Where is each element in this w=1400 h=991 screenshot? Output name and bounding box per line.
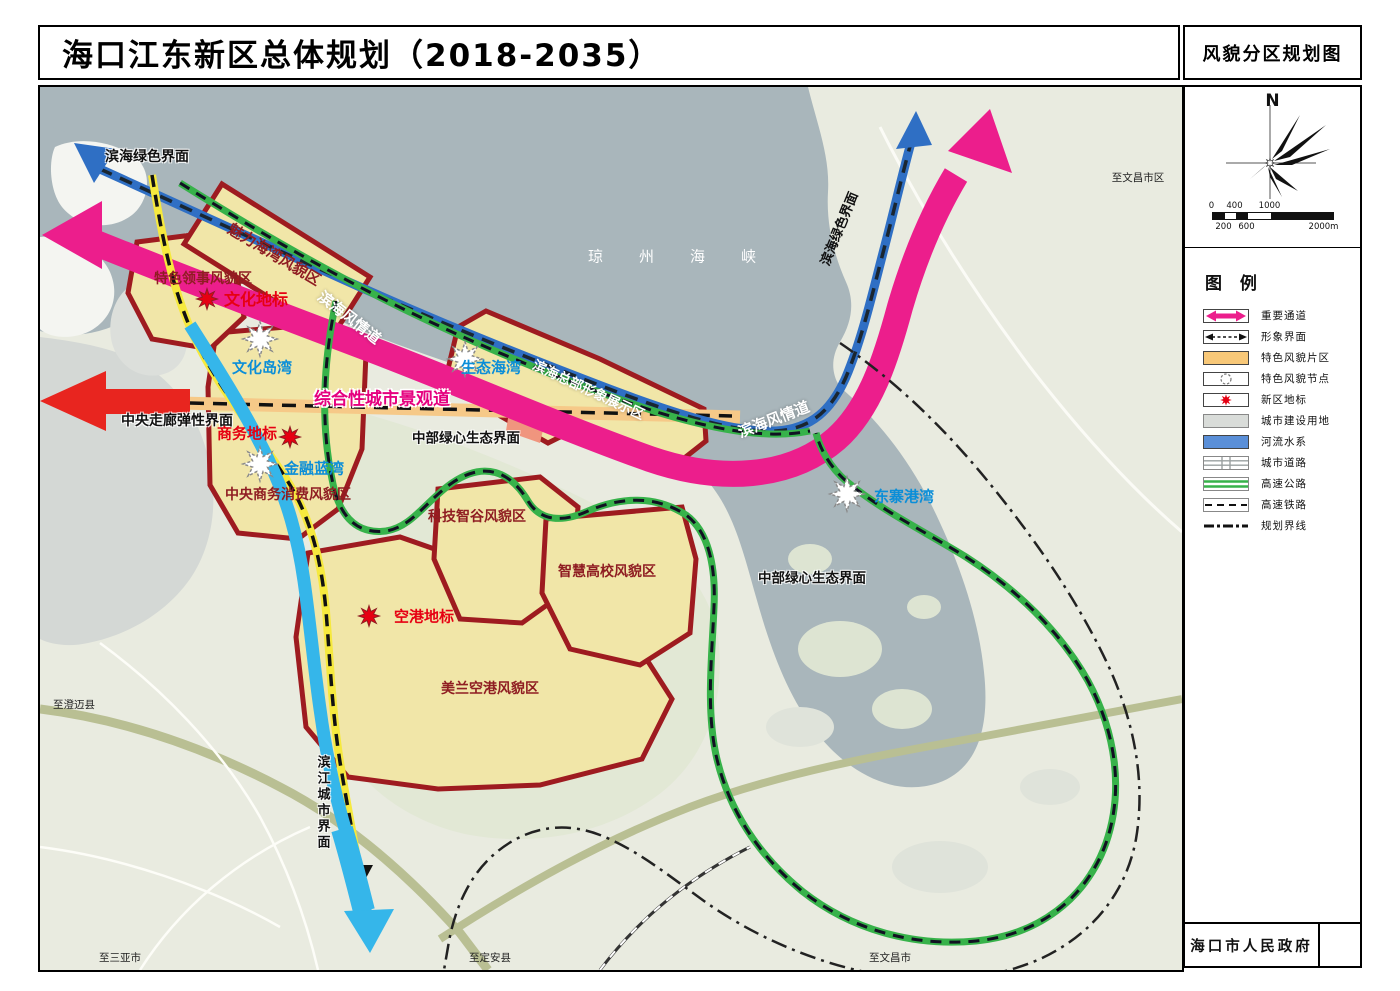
railway-icon <box>1203 498 1249 512</box>
dashdot-line-icon <box>1203 519 1249 533</box>
legend-title: 图 例 <box>1205 269 1360 294</box>
planning-sheet: 海口江东新区总体规划（2018-2035） 风貌分区规划图 <box>0 0 1400 991</box>
compass-section: N 0 400 1000 <box>1185 87 1360 248</box>
corridor-comprehensive-label: 综合性城市景观道 <box>314 392 450 409</box>
central-green-heart-label-east: 中部绿心生态界面 <box>758 572 866 586</box>
zone-meilan-airport-label: 美兰空港风貌区 <box>441 682 539 696</box>
legend-item-urban-construction-land: 城市建设用地 <box>1203 413 1360 428</box>
scale-tick: 200 <box>1215 222 1231 232</box>
direction-to-wenchang-urban: 至文昌市区 <box>1112 173 1165 184</box>
page-title: 海口江东新区总体规划（2018-2035） <box>38 25 1180 80</box>
legend-item-important-corridor: 重要通道 <box>1203 308 1360 323</box>
coastal-green-interface-label-west: 滨海绿色界面 <box>105 150 189 164</box>
node-finance-blue-bay-label: 金融蓝湾 <box>284 462 344 477</box>
legend-item-planning-boundary: 规划界线 <box>1203 518 1360 533</box>
landmark-business-label: 商务地标 <box>217 427 277 442</box>
zone-consular-label: 特色领事风貌区 <box>154 272 252 286</box>
legend-item-city-road: 城市道路 <box>1203 455 1360 470</box>
orange-zone-swatch <box>1203 351 1249 365</box>
node-star-culture-island-bay <box>243 322 277 356</box>
red-star-icon <box>1203 393 1249 407</box>
legend-label: 城市建设用地 <box>1261 413 1330 428</box>
legend-label: 高速铁路 <box>1261 497 1307 512</box>
landmark-star-culture <box>196 288 217 309</box>
direction-to-sanya: 至三亚市 <box>99 953 141 964</box>
legend: 图 例 重要通道 形象界面 特色风貌片区 特色风貌节点 新区地标 <box>1185 247 1360 539</box>
publisher-name: 海口市人民政府 <box>1185 924 1318 966</box>
road-icon <box>1203 456 1249 470</box>
compass-rose-icon <box>1208 101 1338 201</box>
node-eco-bay-label: 生态海湾 <box>461 361 521 376</box>
direction-to-chengmai: 至澄迈县 <box>53 700 95 711</box>
highway-icon <box>1203 477 1249 491</box>
legend-item-river-system: 河流水系 <box>1203 434 1360 449</box>
legend-label: 河流水系 <box>1261 434 1307 449</box>
scale-tick: 400 <box>1226 201 1242 211</box>
legend-label: 特色风貌片区 <box>1261 350 1330 365</box>
node-dongzhai-bay-label: 东寨港湾 <box>874 490 934 505</box>
legend-label: 新区地标 <box>1261 392 1307 407</box>
zone-cbd-label: 中央商务消费风貌区 <box>225 488 351 502</box>
dashed-double-arrow-icon <box>1203 330 1249 344</box>
legend-item-new-district-landmark: 新区地标 <box>1203 392 1360 407</box>
gray-swatch <box>1203 414 1249 428</box>
node-culture-island-bay-label: 文化岛湾 <box>232 361 292 376</box>
sheet-title: 风貌分区规划图 <box>1183 25 1362 80</box>
scale-bar-segments <box>1212 212 1334 220</box>
landmark-culture-label: 文化地标 <box>224 292 288 308</box>
stamp-box <box>1318 924 1360 966</box>
scale-tick: 600 <box>1238 222 1254 232</box>
zone-tech-valley-label: 科技智谷风貌区 <box>428 510 526 524</box>
legend-item-characteristic-node: 特色风貌节点 <box>1203 371 1360 386</box>
landmark-star-business <box>279 426 300 447</box>
direction-to-dingan: 至定安县 <box>469 953 511 964</box>
legend-label: 重要通道 <box>1261 308 1307 323</box>
node-star-finance-blue-bay <box>243 447 277 481</box>
scale-tick: 1000 <box>1259 201 1281 211</box>
central-green-heart-label-west: 中部绿心生态界面 <box>412 432 520 446</box>
sheet-title-text: 风貌分区规划图 <box>1203 40 1343 66</box>
zone-smart-campus-label: 智慧高校风貌区 <box>558 565 656 579</box>
map-marginalia-panel: N 0 400 1000 <box>1183 85 1362 968</box>
urban-land-west <box>40 337 213 645</box>
riverside-city-interface-label: 滨江城市界面 <box>316 755 329 851</box>
legend-item-characteristic-zone: 特色风貌片区 <box>1203 350 1360 365</box>
page-title-text: 海口江东新区总体规划（2018-2035） <box>62 30 661 75</box>
legend-item-image-interface: 形象界面 <box>1203 329 1360 344</box>
legend-label: 高速公路 <box>1261 476 1307 491</box>
legend-item-expressway: 高速公路 <box>1203 476 1360 491</box>
legend-label: 特色风貌节点 <box>1261 371 1330 386</box>
legend-label: 规划界线 <box>1261 518 1307 533</box>
landmark-airport-label: 空港地标 <box>394 610 454 625</box>
node-circle-icon <box>1203 372 1249 386</box>
direction-to-wenchang: 至文昌市 <box>869 953 911 964</box>
legend-label: 城市道路 <box>1261 455 1307 470</box>
legend-label: 形象界面 <box>1261 329 1307 344</box>
map-graphic <box>40 87 1182 970</box>
landmark-star-airport <box>358 605 379 626</box>
map-canvas: 琼州海峡 滨海绿色界面 滨海绿色界面 魅力海湾风貌区 特色领事风貌区 文化地标 … <box>38 85 1184 972</box>
pink-double-arrow-icon <box>1203 309 1249 323</box>
scale-bar: 0 400 1000 200 600 2000m <box>1212 201 1334 233</box>
scale-tick: 0 <box>1209 201 1214 211</box>
zone-smart-campus <box>542 507 696 665</box>
scale-tick: 2000m <box>1309 222 1339 232</box>
sea-name-label: 琼州海峡 <box>588 250 792 265</box>
node-star-dongzhai-bay <box>830 477 864 511</box>
blue-swatch <box>1203 435 1249 449</box>
publisher-strip: 海口市人民政府 <box>1185 922 1360 966</box>
legend-item-high-speed-rail: 高速铁路 <box>1203 497 1360 512</box>
